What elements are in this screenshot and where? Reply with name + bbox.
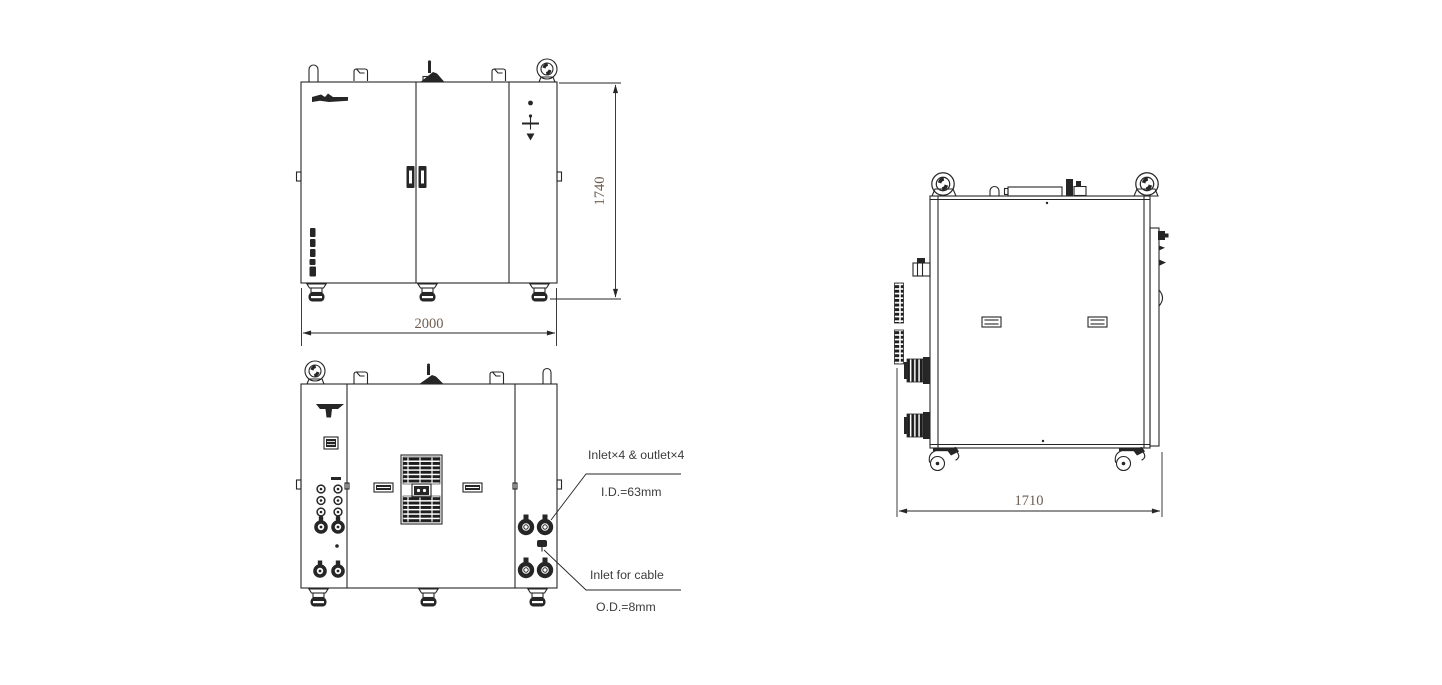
lifting-loop-icon [309,65,318,82]
vent-grille [401,455,442,524]
small-port-icon [317,485,325,493]
small-port-icon [317,508,325,516]
lifting-hook-icon [354,372,368,384]
panel-handle-icon [982,317,1001,327]
lifting-eyebolt-icon [537,59,557,82]
side-terminal-panel [895,283,904,364]
drain-funnel-icon [316,404,344,418]
caster-icon [418,284,437,302]
water-port-icon [520,558,532,577]
pilot-dot [1042,440,1044,442]
panel-handle-icon [1088,317,1107,327]
water-port-icon [539,515,551,534]
pilot-dot [1046,202,1048,204]
callout-cable-inlet-title: Inlet for cable [590,568,664,582]
small-port-icon [334,485,342,493]
side-door-edge [1150,228,1159,446]
pilot-dot [335,544,339,548]
top-rail-icon [1005,179,1087,196]
hinge-clip [557,172,562,181]
lifting-eyebolt-icon [1134,173,1158,196]
top-ring-icon [990,187,999,196]
side-connector-icon [913,258,930,276]
front-width-value: 2000 [415,316,444,332]
small-port-icon [334,497,342,505]
top-clamp-icon [420,364,443,384]
medium-port-icon [333,517,343,533]
callout-inlet-outlet: Inlet×4 & outlet×4 I.D.=63mm [551,448,685,520]
hinge-clip [297,480,302,489]
front-view [297,59,562,302]
water-port-icon [520,515,532,534]
lifting-hook-icon [492,69,506,81]
hinge-clip [557,480,562,489]
side-view [895,173,1169,471]
indicator-marks [522,101,539,141]
cabinet-side-body [930,196,1150,448]
side-knob-icon [1158,231,1169,240]
dimension-side-depth: 1710 [897,368,1162,517]
caster-icon [530,284,549,302]
hinge-clip [297,172,302,181]
lifting-loop-icon [543,369,551,385]
small-port-icon [317,497,325,505]
side-latch-icon [1159,260,1166,266]
side-latch-icon [1159,246,1165,251]
medium-port-icon [316,517,326,533]
lifting-eyebolt-icon [932,173,956,196]
caster-icon [528,589,547,607]
caster-icon [419,589,438,607]
brand-logo [312,94,348,103]
lifting-hook-icon [490,372,504,384]
door-handle-icon [407,166,415,188]
door-handle-icon [419,166,427,188]
medium-port-icon [333,561,343,577]
dimension-front-height: 1740 [550,83,621,299]
medium-port-icon [315,561,325,577]
grille-center-connector [412,484,431,497]
port-tab [331,477,341,480]
caster-icon [1115,447,1145,471]
cabinet-front-body [301,82,557,283]
drawing-page: 1740 2000 [0,0,1442,685]
caster-icon [309,589,328,607]
technical-drawing-canvas: 1740 2000 [0,0,1442,685]
lifting-eyebolt-icon [305,361,325,384]
panel-handle-icon [463,483,482,492]
side-depth-value: 1710 [1015,493,1044,509]
rear-view [297,361,562,607]
hose-connector-icon [904,412,930,439]
callout-inlet-outlet-size: I.D.=63mm [601,485,661,499]
water-port-icon [539,558,551,577]
top-clamp-icon [421,60,444,81]
caster-icon [307,284,326,302]
panel-handle-icon [374,483,393,492]
model-label [310,228,317,277]
small-port-icon [334,508,342,516]
power-connector-icon [324,437,338,449]
callout-inlet-outlet-title: Inlet×4 & outlet×4 [588,448,685,462]
callout-cable-inlet-size: O.D.=8mm [596,600,656,614]
cable-inlet-connector [537,540,547,551]
callout-cable-inlet: Inlet for cable O.D.=8mm [544,550,681,614]
caster-icon [929,447,959,471]
lifting-hook-icon [354,69,368,81]
hose-connector-icon [904,357,930,384]
front-height-value: 1740 [592,177,608,206]
